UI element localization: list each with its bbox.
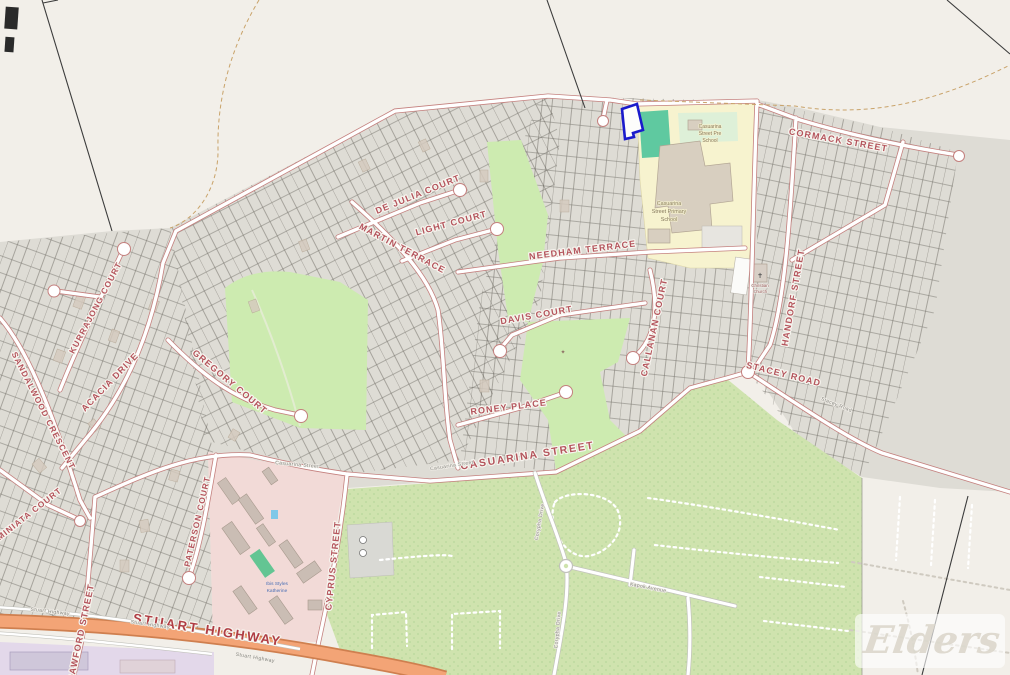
hotel-carpark [347, 522, 394, 578]
church-label-2: Church [753, 289, 768, 294]
primary-school-label-1: Casuarina [657, 201, 682, 207]
preschool-label-3: School [702, 138, 717, 144]
primary-school-label-3: School [661, 217, 677, 223]
playground-icon: ✦ [560, 349, 565, 356]
map-svg[interactable]: ✝ [0, 0, 1010, 675]
church-label-1: Christian [751, 283, 769, 288]
hotel-small-pool [271, 510, 278, 519]
preschool-label-1: Casuarina [699, 124, 722, 130]
church-cross-icon: ✝ [757, 272, 763, 280]
school-grounds [637, 101, 757, 268]
hotel-label-2: Katherine [267, 588, 288, 594]
watermark-logo: Elders [860, 618, 1003, 663]
map-canvas[interactable]: ✝ [0, 0, 1010, 675]
primary-school-label-2: Street Primary [652, 209, 687, 215]
hotel-label-1: Ibis Styles [266, 581, 288, 587]
preschool-label-2: Street Pre [699, 131, 722, 137]
watermark: Elders [855, 614, 1005, 668]
